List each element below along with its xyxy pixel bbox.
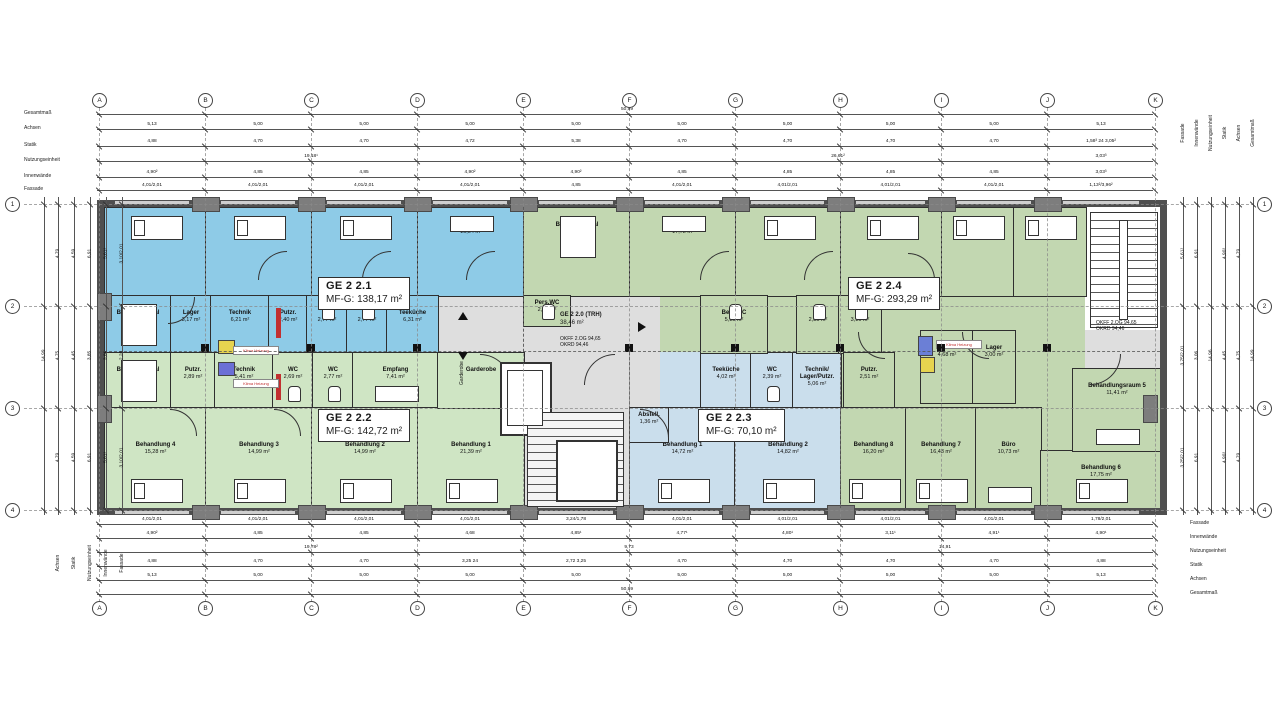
axis-bubble: D — [410, 93, 425, 108]
dim-value: 4,01/2,01 — [112, 183, 192, 188]
direction-arrow — [638, 322, 646, 332]
dim-value: 5,00 — [954, 122, 1034, 127]
dim-value: 9,73 — [589, 545, 669, 550]
pilaster — [510, 505, 538, 520]
dim-value: 14,96 — [1209, 316, 1214, 396]
core-label: GE 2 2.0 (TRH) 38,46 m² — [560, 312, 602, 328]
unit-ge222-area: MF-G: 142,72 m² — [326, 426, 402, 439]
unit-ge224-area: MF-G: 293,29 m² — [856, 294, 932, 307]
dim-value: 5,13 — [1061, 122, 1141, 127]
dim-value: 5,13 — [1061, 573, 1141, 578]
dim-value: 4,79 — [1237, 418, 1242, 498]
equipment-marker — [920, 357, 935, 373]
dim-line — [97, 190, 1153, 191]
unit-ge221-area: MF-G: 138,17 m² — [326, 294, 402, 307]
dim-value: 5,00 — [324, 122, 404, 127]
dim-value: 4,70 — [954, 139, 1034, 144]
dim-value: 4,01/2,01 — [324, 183, 404, 188]
window-strip — [433, 511, 507, 514]
dim-value: 4,75 — [1237, 316, 1242, 396]
dim-value: 3,03³ — [1061, 170, 1141, 175]
dim-value: 5,00 — [851, 573, 931, 578]
dim-value: 4,01/2,01 — [112, 517, 192, 522]
dim-value: 4,85 — [324, 170, 404, 175]
axis-bubble: I — [934, 93, 949, 108]
axis-bubble: 2 — [5, 299, 20, 314]
dim-value: 4,59 — [72, 214, 77, 294]
axis-bubble: 4 — [1257, 503, 1272, 518]
dim-value: 4,01/2,01 — [748, 517, 828, 522]
dim-value: 3,11¹ — [851, 531, 931, 536]
legend-tag: Klima Heizung — [233, 379, 279, 388]
dim-value: 5,00 — [218, 122, 298, 127]
dim-value: 5,61¹ — [1181, 214, 1186, 294]
dim-value: 4,75 — [56, 316, 61, 396]
dim-name: Nutzungseinheit — [1208, 98, 1214, 168]
window-strip — [327, 511, 401, 514]
dim-value: 5,00 — [851, 122, 931, 127]
core-name: GE 2 2.0 (TRH) — [560, 312, 602, 320]
axis-bubble: 1 — [5, 197, 20, 212]
dim-value: 1,78/2,01 — [1061, 517, 1141, 522]
level-note-right: OKFF 2.OG 94,65 OKRD 94,46 — [1096, 320, 1137, 333]
axis-bubble: B — [198, 601, 213, 616]
dim-value: 4,70 — [748, 139, 828, 144]
dim-name: Statik — [71, 528, 77, 598]
window-strip — [856, 511, 925, 514]
axis-bubble: K — [1148, 93, 1163, 108]
stair-rail — [1119, 220, 1128, 320]
dim-name: Nutzungseinheit — [1190, 548, 1268, 554]
dim-name: Gesamtmaß — [1250, 98, 1256, 168]
dim-value: 4,70 — [218, 139, 298, 144]
plan-layer: Behandlung 315,28 m²Behandlung 214,99 m²… — [0, 0, 1280, 720]
dim-value: 5,61¹ — [104, 214, 109, 294]
dim-value: 4,85 — [536, 183, 616, 188]
dim-name: Achsen — [55, 528, 61, 598]
dim-name: Statik — [1190, 562, 1268, 568]
equipment-marker — [218, 362, 235, 376]
axis-bubble: K — [1148, 601, 1163, 616]
floor-plan: Behandlung 315,28 m²Behandlung 214,99 m²… — [0, 0, 1280, 720]
dim-value: 4,70 — [954, 559, 1034, 564]
equipment-marker — [918, 336, 933, 356]
dim-value: 5,00 — [430, 573, 510, 578]
dim-line — [97, 177, 1153, 178]
dim-value: 4,85¹ — [536, 531, 616, 536]
dim-value: 4,70 — [851, 139, 931, 144]
dim-name: Fassade — [1190, 520, 1268, 526]
dim-value: 3,75/2,01 — [1181, 316, 1186, 396]
dim-line — [97, 524, 1153, 525]
window-strip — [115, 511, 189, 514]
axis-bubble: F — [622, 93, 637, 108]
window-strip — [539, 511, 613, 514]
pilaster — [928, 505, 956, 520]
dim-value: 3,66 — [104, 316, 109, 396]
grid-line-col — [1155, 108, 1156, 602]
dim-value: 4,01/2,01 — [748, 183, 828, 188]
pilaster — [616, 505, 644, 520]
axis-bubble: 4 — [5, 503, 20, 518]
dim-name: Achsen — [1236, 98, 1242, 168]
dim-name: Innenwände — [1190, 534, 1268, 540]
grid-line-col — [205, 108, 206, 602]
dim-value: 5,00 — [642, 122, 722, 127]
dim-value: 4,85 — [851, 170, 931, 175]
pilaster — [722, 505, 750, 520]
dim-value: 4,90¹ — [1223, 214, 1228, 294]
dim-value: 4,59 — [72, 418, 77, 498]
pilaster — [1034, 505, 1062, 520]
axis-bubble: 3 — [5, 401, 20, 416]
grid-line-row — [24, 408, 1254, 409]
axis-bubble: F — [622, 601, 637, 616]
dim-name: Innenwände — [24, 173, 94, 179]
dim-value: 5,00 — [218, 573, 298, 578]
dim-value: 4,79 — [56, 214, 61, 294]
window-strip — [221, 511, 295, 514]
misc-label: Garderobe — [459, 343, 465, 403]
dim-line — [97, 552, 1153, 553]
axis-bubble: H — [833, 601, 848, 616]
pilaster — [192, 505, 220, 520]
dim-value: 4,01/2,01 — [954, 517, 1034, 522]
unit-label-ge224: GE 2 2.4 MF-G: 293,29 m² — [848, 277, 940, 310]
axis-bubble: E — [516, 601, 531, 616]
dim-value: 4,85 — [218, 531, 298, 536]
dim-name: Fassade — [1180, 98, 1186, 168]
dim-value: 19,18¹ — [271, 154, 351, 159]
dim-value: 4,90² — [430, 170, 510, 175]
unit-label-ge222: GE 2 2.2 MF-G: 142,72 m² — [318, 409, 410, 442]
dim-name: Innenwände — [1194, 98, 1200, 168]
dim-name: Achsen — [24, 125, 94, 131]
dim-value: 4,90¹ — [1061, 531, 1141, 536]
dim-value: 4,70 — [642, 139, 722, 144]
dim-value: 4,85 — [218, 170, 298, 175]
dim-value: 4,91¹ — [954, 531, 1034, 536]
dim-value: 5,00 — [536, 122, 616, 127]
unit-ge223-name: GE 2 2.3 — [706, 412, 777, 426]
unit-ge223-area: MF-G: 70,10 m² — [706, 426, 777, 439]
grid-line-col — [1047, 108, 1048, 602]
dim-line — [97, 161, 1153, 162]
dim-value: 1,58³ 24 3,05² — [1061, 139, 1141, 144]
core-area: 38,46 m² — [560, 320, 602, 328]
unit-ge224-name: GE 2 2.4 — [856, 280, 932, 294]
window-strip — [1063, 511, 1139, 514]
dim-value: 4,70 — [218, 559, 298, 564]
dim-value: 4,45 — [1223, 316, 1228, 396]
stair-landing — [556, 440, 618, 502]
grid-line-row — [24, 306, 1254, 307]
dim-value: 5,38 — [536, 139, 616, 144]
dim-line — [97, 594, 1153, 595]
dim-value: 4,01/2,01 — [430, 517, 510, 522]
dim-name: Gesamtmaß — [24, 110, 94, 116]
dim-name: Gesamtmaß — [1190, 590, 1268, 596]
grid-line-col — [99, 108, 100, 602]
dim-value: 4,70 — [324, 139, 404, 144]
direction-arrow — [458, 312, 468, 320]
dim-value: 4,01/2,01 — [851, 517, 931, 522]
unit-label-ge221: GE 2 2.1 MF-G: 138,17 m² — [318, 277, 410, 310]
pilaster — [404, 505, 432, 520]
dim-value: 4,01/2,01 — [851, 183, 931, 188]
dim-value: 14,99 — [1251, 316, 1256, 396]
exterior-wall — [97, 200, 1167, 515]
dim-value: 3,25 24 — [430, 559, 510, 564]
dim-name: Fassade — [24, 186, 94, 192]
dim-value: 3,10/2,01 — [120, 418, 125, 498]
grid-line-row — [24, 204, 1254, 205]
dim-value: 4,70 — [748, 559, 828, 564]
dim-value: 2,28 — [120, 316, 125, 396]
dim-value: 5,00 — [642, 573, 722, 578]
dim-value: 14,91 — [905, 545, 985, 550]
dim-value: 4,88 — [112, 139, 192, 144]
dim-line — [97, 129, 1153, 130]
dim-name: Statik — [1222, 98, 1228, 168]
dim-name: Fassade — [119, 528, 125, 598]
dim-value: 5,00 — [748, 122, 828, 127]
unit-boundary — [104, 351, 1160, 352]
dim-name: Innenwände — [103, 528, 109, 598]
axis-bubble: 3 — [1257, 401, 1272, 416]
dim-value: 1,13²/3,96² — [1061, 183, 1141, 188]
dim-value: 14,99 — [42, 316, 47, 396]
unit-ge222-name: GE 2 2.2 — [326, 412, 402, 426]
dim-value: 6,91 — [88, 418, 93, 498]
dim-value: 5,00 — [954, 573, 1034, 578]
dim-value: 4,01/2,01 — [642, 517, 722, 522]
dim-value: 4,85 — [324, 531, 404, 536]
dim-value: 50,99 — [587, 587, 667, 592]
dim-value: 4,70 — [642, 559, 722, 564]
dim-line — [97, 146, 1153, 147]
dim-value: 4,01/2,01 — [324, 517, 404, 522]
dim-value: 4,90¹ — [1223, 418, 1228, 498]
dim-value: 3,25/2,01 — [1181, 418, 1186, 498]
axis-bubble: J — [1040, 93, 1055, 108]
dim-value: 5,00 — [430, 122, 510, 127]
window-strip — [751, 511, 824, 514]
dim-value: 3,03³ — [1061, 154, 1141, 159]
dim-value: 4,01/2,01 — [642, 183, 722, 188]
dim-value: 4,77¹ — [642, 531, 722, 536]
dim-value: 4,79 — [1237, 214, 1242, 294]
dim-line — [97, 538, 1153, 539]
axis-bubble: H — [833, 93, 848, 108]
dim-value: 4,01/2,01 — [218, 183, 298, 188]
dim-line — [97, 580, 1153, 581]
grid-line-row — [24, 510, 1254, 511]
axis-bubble: D — [410, 601, 425, 616]
dim-value: 26,61² — [798, 154, 878, 159]
unit-boundary — [523, 207, 524, 352]
unit-label-ge223: GE 2 2.3 MF-G: 70,10 m² — [698, 409, 785, 442]
dim-value: 5,00 — [324, 573, 404, 578]
grid-line-col — [735, 108, 736, 602]
grid-line-col — [941, 108, 942, 602]
dim-value: 6,91 — [1195, 418, 1200, 498]
axis-bubble: C — [304, 93, 319, 108]
dim-value: 4,72 — [430, 139, 510, 144]
dim-value: 5,00 — [536, 573, 616, 578]
axis-bubble: G — [728, 93, 743, 108]
dim-value: 4,88 — [1061, 559, 1141, 564]
dim-value: 3,10/2,01 — [120, 214, 125, 294]
axis-bubble: A — [92, 93, 107, 108]
dim-value: 2,72 3,25 — [536, 559, 616, 564]
axis-bubble: 1 — [1257, 197, 1272, 212]
dim-value: 4,01/2,01 — [954, 183, 1034, 188]
dim-value: 19,78² — [271, 545, 351, 550]
dim-value: 4,90² — [112, 170, 192, 175]
riser-marker — [276, 308, 281, 338]
axis-bubble: A — [92, 601, 107, 616]
dim-name: Achsen — [1190, 576, 1268, 582]
dim-name: Statik — [24, 142, 94, 148]
elevator-car — [507, 370, 543, 426]
dim-value: 3,06 — [1195, 316, 1200, 396]
axis-bubble: J — [1040, 601, 1055, 616]
axis-bubble: I — [934, 601, 949, 616]
dim-name: Nutzungseinheit — [87, 528, 93, 598]
dim-value: 4,70 — [851, 559, 931, 564]
dim-value: 6,91 — [1195, 214, 1200, 294]
unit-ge221-name: GE 2 2.1 — [326, 280, 402, 294]
axis-bubble: B — [198, 93, 213, 108]
dim-value: 4,79 — [56, 418, 61, 498]
dim-value: 4,68 — [430, 531, 510, 536]
dim-value: 4,85 — [748, 170, 828, 175]
axis-bubble: G — [728, 601, 743, 616]
dim-name: Nutzungseinheit — [24, 157, 94, 163]
grid-line-col — [417, 108, 418, 602]
unit-boundary — [840, 352, 841, 508]
unit-boundary — [629, 352, 630, 508]
window-strip — [957, 511, 1031, 514]
dim-value: 5,13 — [112, 122, 192, 127]
axis-bubble: C — [304, 601, 319, 616]
dim-value: 4,80¹ — [748, 531, 828, 536]
dim-value: 4,90² — [536, 170, 616, 175]
dim-line — [97, 566, 1153, 567]
grid-line-col — [523, 108, 524, 602]
dim-value: 3,85 — [88, 316, 93, 396]
level-note-center: OKFF 2.OG 94,65 OKRD 94,46 — [560, 336, 601, 349]
dim-value: 4,70 — [324, 559, 404, 564]
dim-value: 4,01/2,01 — [430, 183, 510, 188]
dim-value: 4,45 — [72, 316, 77, 396]
pilaster — [298, 505, 326, 520]
axis-bubble: E — [516, 93, 531, 108]
dim-value: 5,00 — [748, 573, 828, 578]
dim-value: 3,24/1,78 — [536, 517, 616, 522]
dim-value: 4,85 — [642, 170, 722, 175]
window-strip — [645, 511, 719, 514]
grid-line-col — [311, 108, 312, 602]
dim-value: 6,91 — [88, 214, 93, 294]
dim-value: 4,85 — [954, 170, 1034, 175]
dim-value: 4,01/2,01 — [218, 517, 298, 522]
axis-bubble: 2 — [1257, 299, 1272, 314]
dim-line — [97, 114, 1153, 115]
dim-value: 5,61¹ — [104, 418, 109, 498]
